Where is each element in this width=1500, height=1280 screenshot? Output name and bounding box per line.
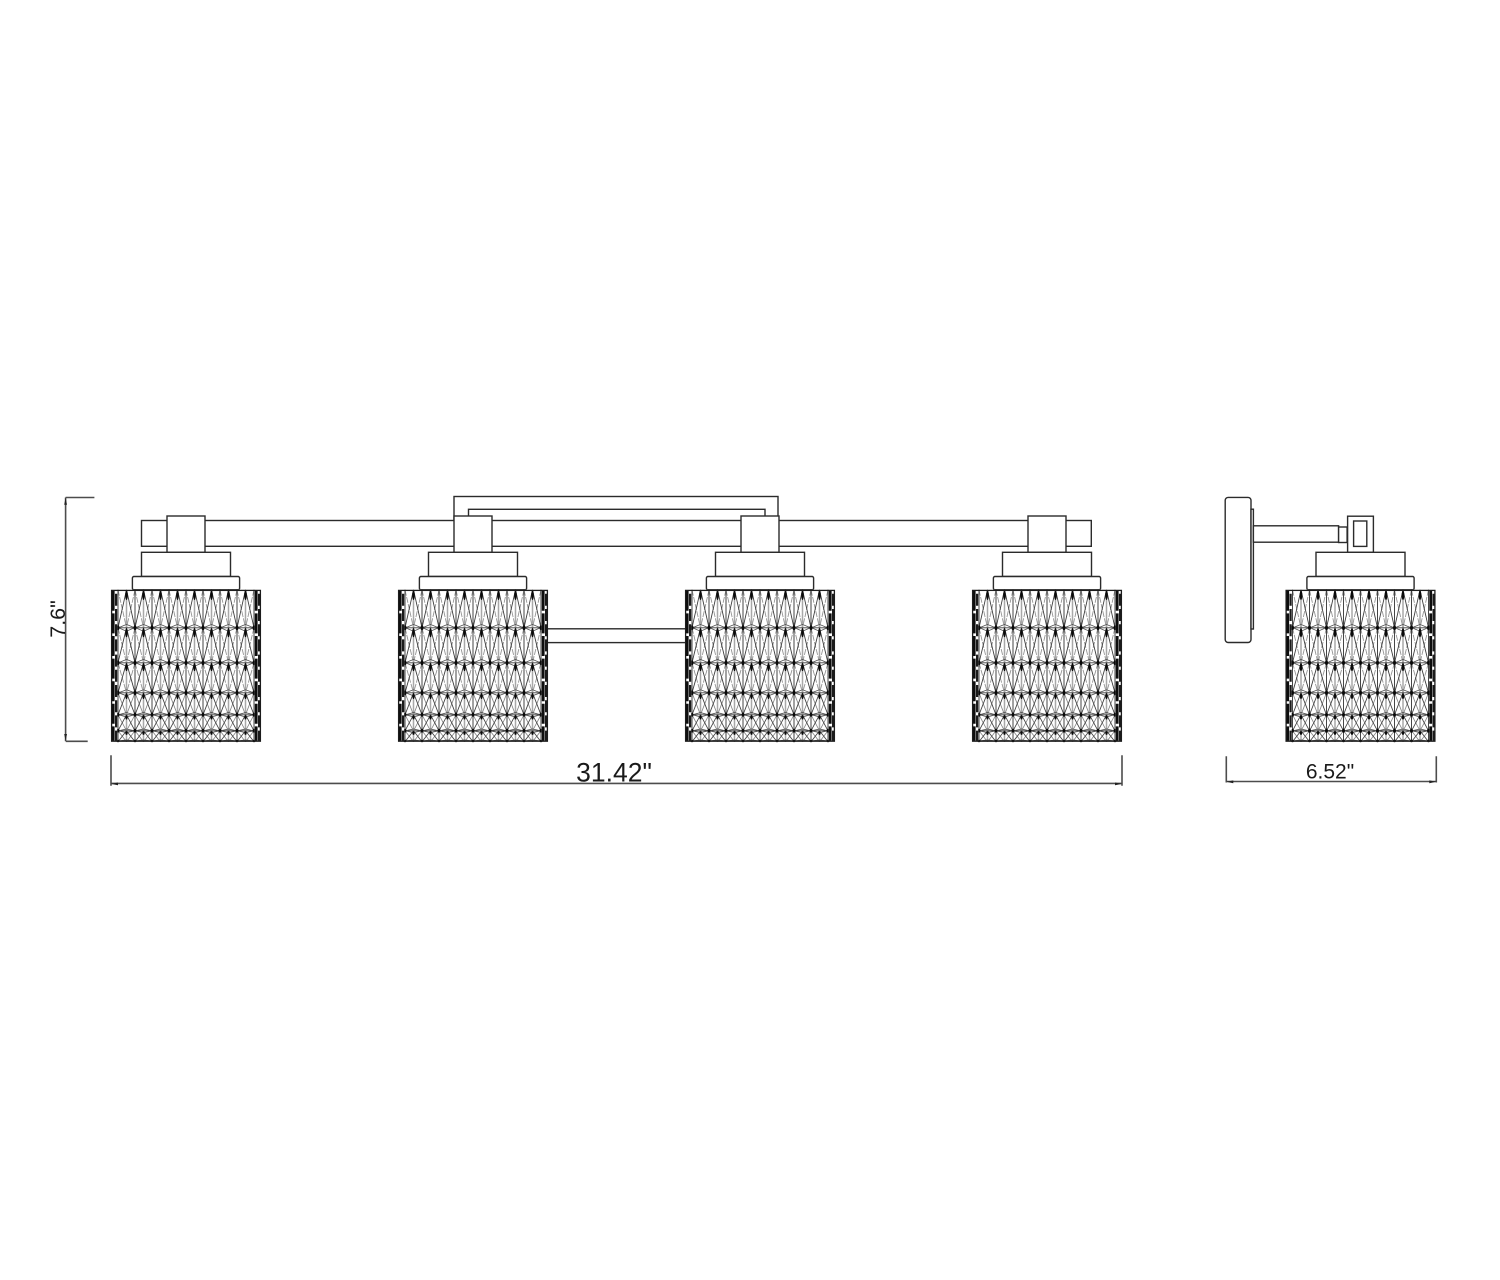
svg-text:31.42": 31.42" [576,758,652,788]
svg-text:6.52": 6.52" [1306,761,1354,784]
svg-text:7.6": 7.6" [46,600,70,638]
